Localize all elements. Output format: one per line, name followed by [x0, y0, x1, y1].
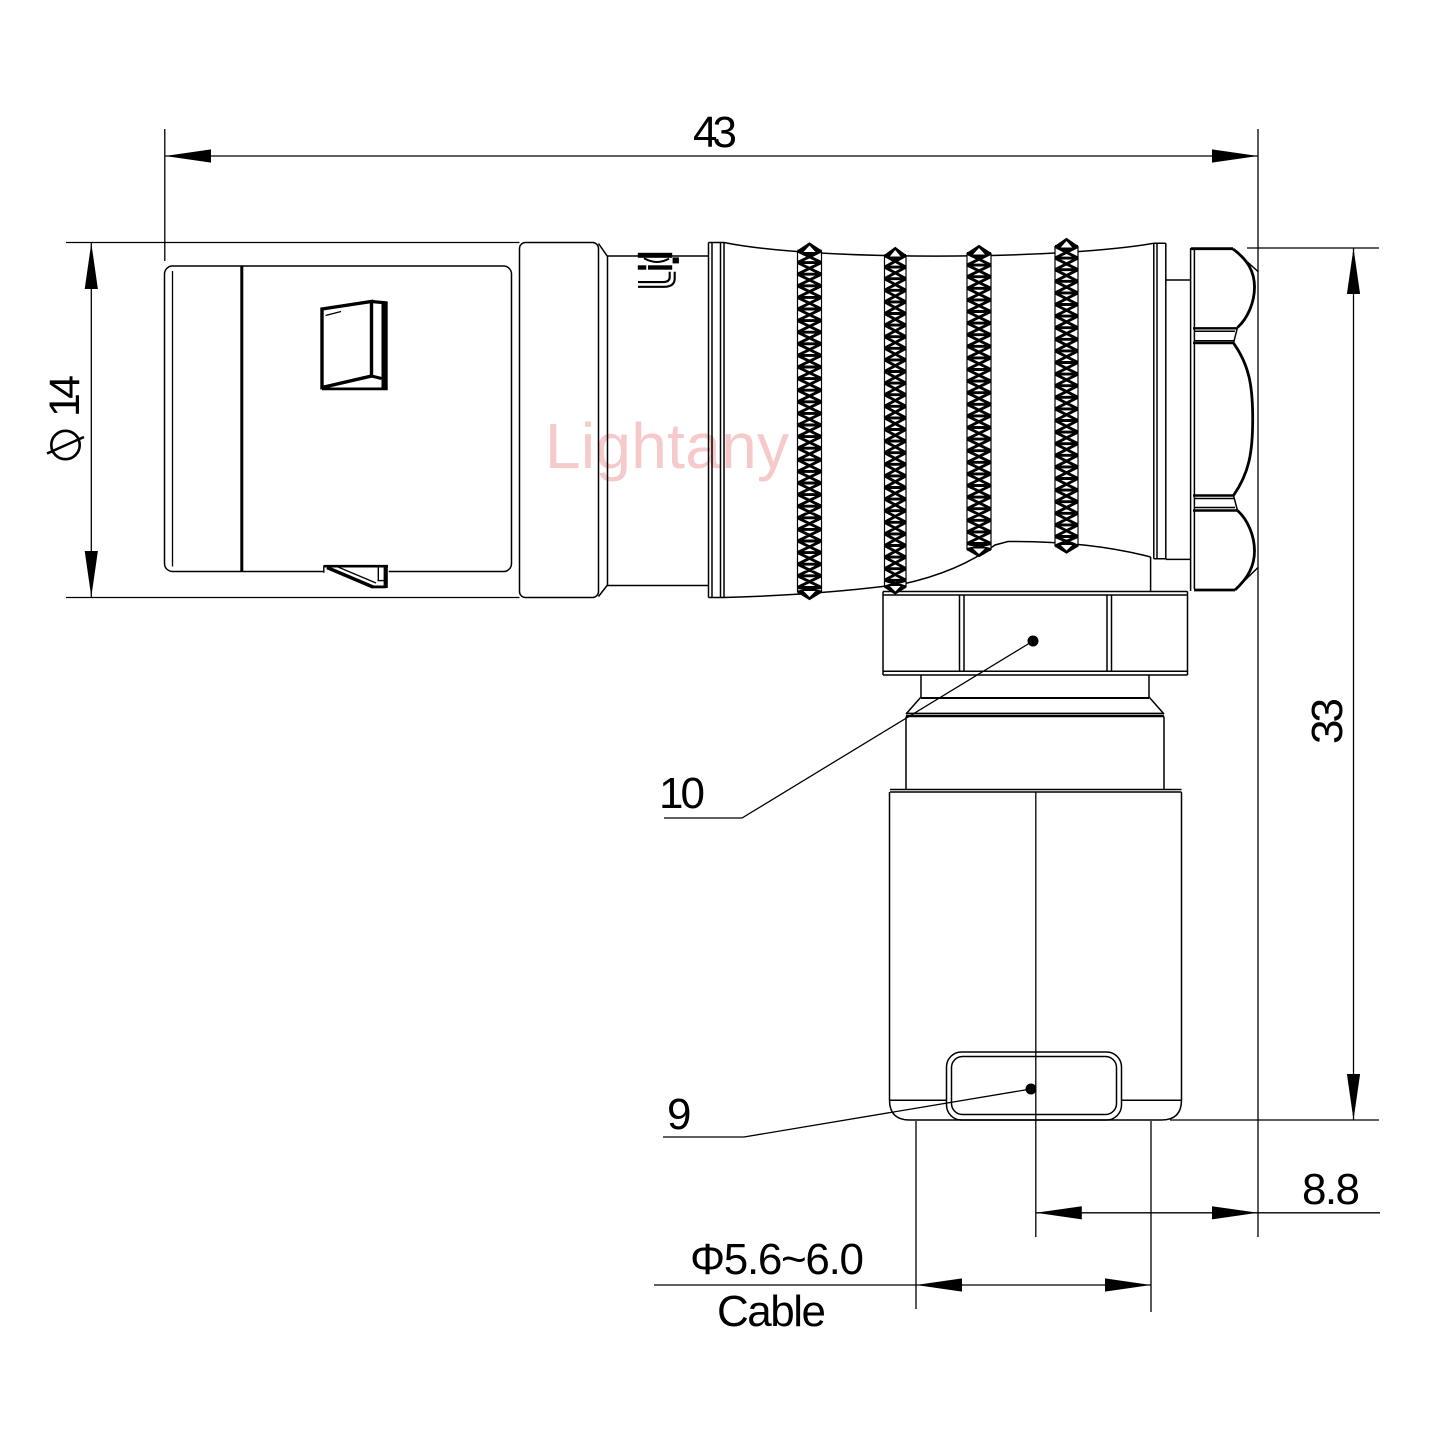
svg-text:Cable: Cable: [717, 1287, 826, 1336]
svg-text:33: 33: [1303, 698, 1352, 744]
svg-text:8.8: 8.8: [1302, 1165, 1360, 1214]
svg-text:14: 14: [41, 375, 89, 417]
svg-text:Φ5.6~6.0: Φ5.6~6.0: [690, 1235, 864, 1284]
svg-text:10: 10: [659, 769, 705, 818]
svg-text:43: 43: [693, 108, 737, 157]
svg-text:Lightany: Lightany: [545, 410, 789, 482]
svg-text:9: 9: [667, 1090, 691, 1139]
